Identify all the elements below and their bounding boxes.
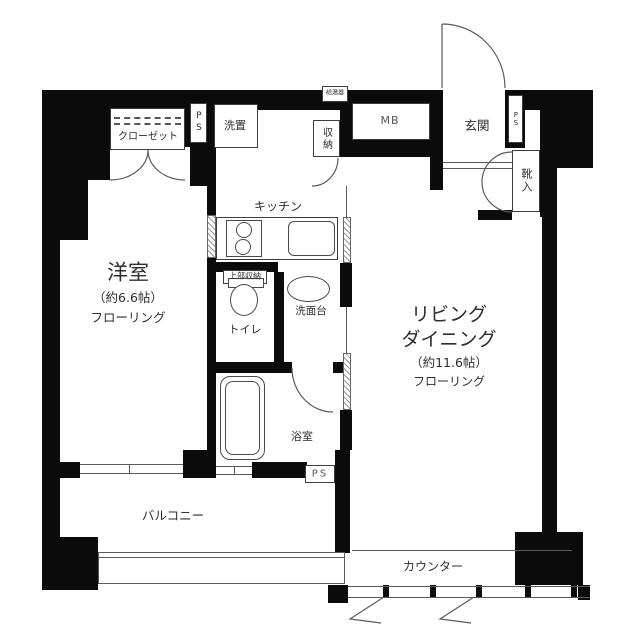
toilet-label: トイレ bbox=[229, 324, 262, 336]
mb-label: MB bbox=[380, 115, 399, 127]
balcony-label: バルコニー bbox=[142, 509, 204, 523]
casement-window-arc bbox=[350, 597, 384, 623]
ps-niche-label: PS bbox=[511, 111, 519, 127]
bath-label: 浴室 bbox=[291, 431, 313, 443]
closet-label: クローゼット bbox=[118, 132, 178, 143]
closet-door-arc bbox=[110, 150, 185, 180]
casement-window-arc bbox=[440, 597, 474, 623]
living-floor: フローリング bbox=[413, 375, 485, 388]
entrance-label: 玄関 bbox=[464, 119, 489, 133]
bedroom-name: 洋室 bbox=[107, 261, 149, 284]
bedroom-size: （約6.6帖） bbox=[93, 291, 163, 305]
shoe-box-label: 靴入 bbox=[520, 168, 532, 194]
washstand-label: 洗面台 bbox=[295, 306, 327, 318]
ps-bottom-label: PS bbox=[312, 469, 328, 480]
kitchen-label: キッチン bbox=[254, 200, 302, 213]
counter-label: カウンター bbox=[403, 560, 463, 573]
living-name-2: ダイニング bbox=[401, 330, 496, 351]
upper-storage-label: 上部収納 bbox=[229, 273, 261, 282]
entrance-door-arc bbox=[442, 24, 505, 88]
bath-door-arc bbox=[292, 368, 333, 412]
shoe-cabinet-arc bbox=[482, 152, 512, 212]
floor-plan: クローゼット PS 洗置 収納 MB 給湯器 玄関 PS 靴入 キッチン 上部収… bbox=[0, 0, 620, 637]
living-name-1: リビング bbox=[411, 305, 487, 326]
water-heater-label: 給湯器 bbox=[326, 91, 344, 98]
bedroom-floor: フローリング bbox=[90, 311, 165, 325]
ps-label: PS bbox=[193, 111, 203, 135]
living-size: （約11.6帖） bbox=[410, 356, 488, 370]
kitchen-door-arc bbox=[312, 158, 338, 186]
laundry-label: 洗置 bbox=[224, 120, 246, 132]
hall-storage-label: 収納 bbox=[321, 127, 332, 151]
